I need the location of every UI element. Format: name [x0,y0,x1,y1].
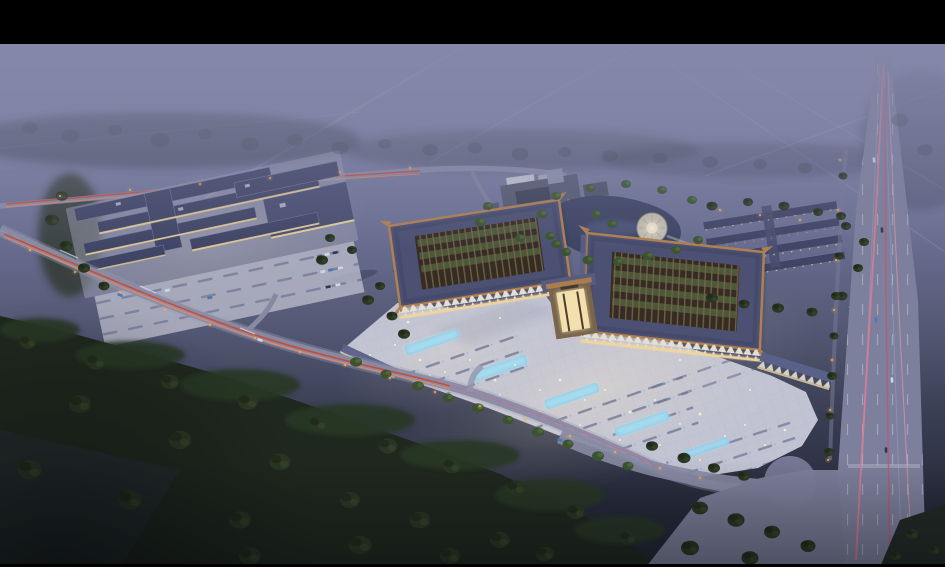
letterbox-top [0,0,945,44]
aerial-dusk-rendering [0,0,945,567]
